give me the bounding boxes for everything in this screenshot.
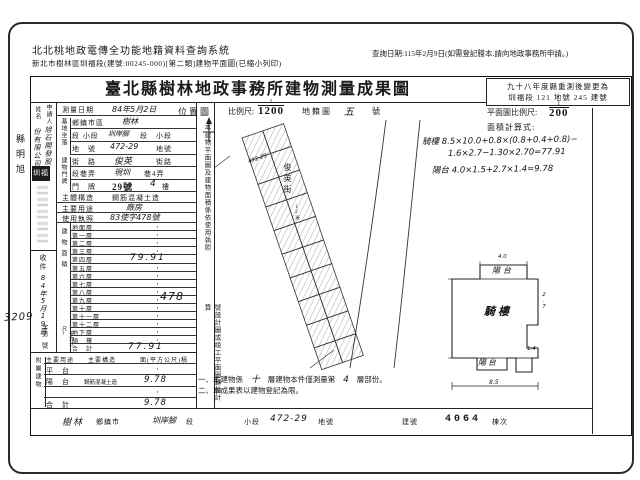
strip-unit-label: 棟次: [492, 417, 508, 427]
row-hand-value: 圳岸腳: [108, 129, 129, 139]
strip-township-value: 樹林: [62, 415, 84, 428]
strip-township-label: 鄉鎮市: [96, 417, 120, 427]
survey-date-row: 測量日期 84年5月2日: [56, 102, 196, 116]
area-calc-line2: 1.6×2.7−1.30×2.70=77.91: [448, 147, 566, 159]
floor-value: 79.91: [130, 253, 166, 263]
location-map-sketch: [214, 118, 440, 370]
annex-value: 9.78: [144, 398, 167, 408]
row-suffix: 段 小段: [140, 131, 172, 141]
applicant-column: 申請人 姓名 旭石開發股 份有限公司 圳福 收件 84年5月19日 字第 號: [30, 102, 57, 352]
receipt-divider: [30, 250, 56, 251]
strip-section-label: 段: [186, 417, 193, 427]
annotation-text-top: 本建物平面圖及建物面積係依使用執照: [201, 124, 211, 292]
applicant-label-left: 姓名: [33, 106, 42, 120]
receipt-hao-label: 號: [38, 342, 48, 349]
applicant-label-right: 申請人: [44, 104, 53, 125]
bottom-location-strip: 樹林 鄉鎮市 圳岸腳 段 小段 472-29 地號 建號 4064 棟次: [30, 408, 592, 435]
note1-pre: 一、本建物係: [198, 375, 243, 384]
applicant-name-col2: 份有限公司: [32, 128, 42, 168]
section-seal-stamp: 圳福: [32, 166, 50, 181]
road-width-note: 12米: [293, 205, 300, 220]
row-suffix: 巷4弄: [144, 169, 165, 179]
plan-scale-label: 平面圖比例尺:: [487, 107, 537, 118]
strip-building-number: 4064: [445, 414, 481, 425]
remeasure-line1: 九十八年度縣重測後變更為: [487, 81, 629, 92]
floor-total-value: 77.91: [128, 342, 164, 352]
plan-dim-bottom: 8.5: [489, 379, 499, 386]
scale-denominator: 1200: [258, 106, 284, 117]
row-suffix: 地號: [156, 144, 172, 154]
row-hand-value: 現圳: [114, 167, 130, 178]
road-name-label: 俊英街: [282, 163, 293, 196]
site-row-section: 段 小段 圳岸腳 段 小段: [70, 128, 196, 142]
note1-mid: 層建物本件僅測量第: [268, 375, 336, 384]
floor-area-group-label: 建物面積: [59, 228, 68, 324]
sheet-number: 五: [344, 103, 354, 118]
document-subtitle: 新北市樹林區圳福段(建號:00245-000)[第二類]建物平面圖(已縮小列印): [32, 58, 282, 69]
annex-structure: 鋼筋混凝土造: [84, 378, 117, 386]
strip-parcel-label: 地號: [318, 417, 334, 427]
receipt-zi-label: 字第: [38, 324, 48, 337]
system-title: 北北桃地政電傳全功能地籍資料查詢系統: [32, 42, 230, 57]
balcony-top-label: 陽台: [492, 265, 514, 276]
strip-parcel-value: 472-29: [270, 414, 308, 424]
annotation-license-number: 478: [160, 290, 184, 303]
area-calc-label: 面積計算式:: [487, 122, 535, 133]
row-label: 段 小段: [72, 131, 99, 141]
form-right-divider: [592, 108, 593, 434]
address-row-lane: 段巷弄 現圳 巷4弄: [70, 166, 196, 180]
receipt-label: 收件: [38, 254, 48, 272]
scale-label: 比例尺:: [228, 106, 254, 117]
cadastral-map-label: 地籍圖: [302, 106, 332, 117]
note-line1: 一、本建物係 十 層建物本件僅測量第 4 層部份。: [198, 372, 387, 385]
annex-value: ·: [156, 387, 159, 397]
balcony-bottom-label: 陽台: [478, 357, 498, 368]
site-row-township: 鄉鎮市區 樹林: [70, 115, 196, 129]
plan-scale-fraction: 1 200: [549, 101, 569, 119]
location-scale-fraction: 1 1200: [258, 99, 284, 117]
floor-plan-drawing: [438, 238, 610, 398]
left-margin-stamp: 縣明旭: [14, 134, 27, 179]
row-label: 地 號: [72, 144, 96, 154]
sheet-unit: 號: [372, 106, 380, 117]
row-hand-value: 472-29: [110, 142, 138, 151]
plan-scale-denominator: 200: [549, 108, 569, 119]
annotation-column: 本建物平面圖及建物面積係依使用執照 號設計圖或竣工平面圖轉繪計算: [196, 102, 215, 408]
plan-dim-right: 2.7: [541, 292, 547, 310]
plan-dim-top: 4.0: [498, 254, 507, 260]
row-label: 鄉鎮市區: [72, 118, 104, 128]
strip-building-label: 建號: [402, 417, 418, 427]
note1-suffix: 層部份。: [357, 375, 387, 384]
row-hand-value: 4: [150, 179, 156, 189]
query-date: 查詢日期:115年2月9日(如需登記謄本,請向地政事務所申請。): [372, 48, 568, 59]
stamp-smudge: [37, 186, 48, 246]
plan-dim-foot: 1.4: [527, 346, 536, 352]
row-hand-value: 樹林: [122, 116, 138, 127]
main-data-table: 申請人 姓名 旭石開發股 份有限公司 圳福 收件 84年5月19日 字第 號 測…: [30, 102, 197, 352]
applicant-name-col1: 旭石開發股: [43, 126, 53, 166]
survey-date-value: 84年5月2日: [112, 104, 156, 115]
annex-building-table: 附屬建物 主要用途 主要構造 面(平方公尺)積 平 台 · 陽 台 鋼筋混凝土造…: [30, 352, 197, 409]
area-calc-line3: 陽台 4.0×1.5+2.7×1.4=9.78: [432, 162, 553, 176]
strip-section-value: 圳岸腳: [152, 415, 176, 426]
note1-hand-floors: 十: [245, 375, 266, 385]
site-row-parcel: 地 號 472-29 地號: [70, 141, 196, 155]
floor-plan-main-label: 騎樓: [484, 303, 512, 319]
annex-value: 9.78: [144, 375, 167, 385]
survey-date-label: 測量日期: [62, 105, 94, 115]
scanned-survey-document: 北北桃地政電傳全功能地籍資料查詢系統 新北市樹林區圳福段(建號:00245-00…: [0, 0, 640, 480]
note1-hand-level: 4: [337, 375, 355, 385]
strip-subsection-label: 小段: [244, 417, 260, 427]
note-line2: 二、本成果表以建物登記為限。: [198, 385, 303, 396]
annex-value: ·: [156, 364, 159, 374]
row-label: 段巷弄: [72, 169, 96, 179]
floor-row-total: 合 計 77.91: [70, 343, 196, 352]
